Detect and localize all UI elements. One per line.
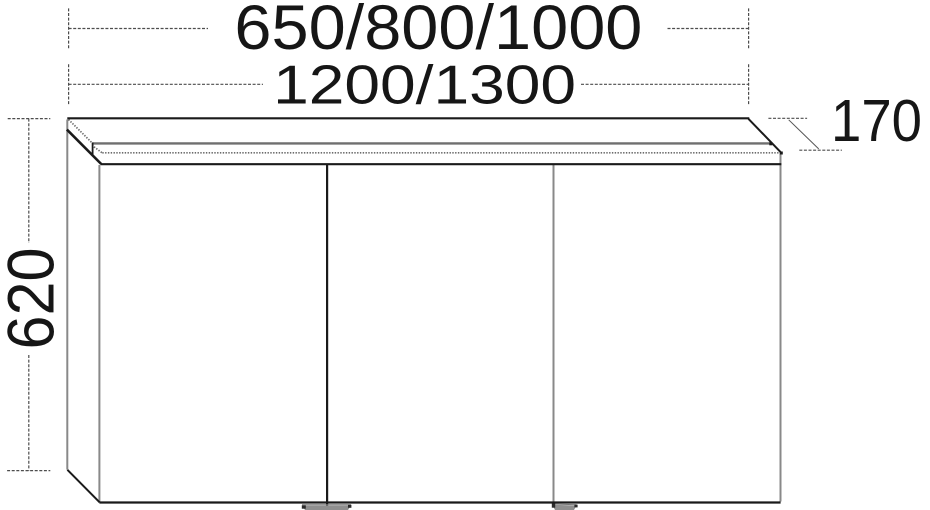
svg-text:1200/1300: 1200/1300 [273,53,576,115]
svg-text:170: 170 [831,88,922,154]
svg-text:620: 620 [0,248,68,350]
